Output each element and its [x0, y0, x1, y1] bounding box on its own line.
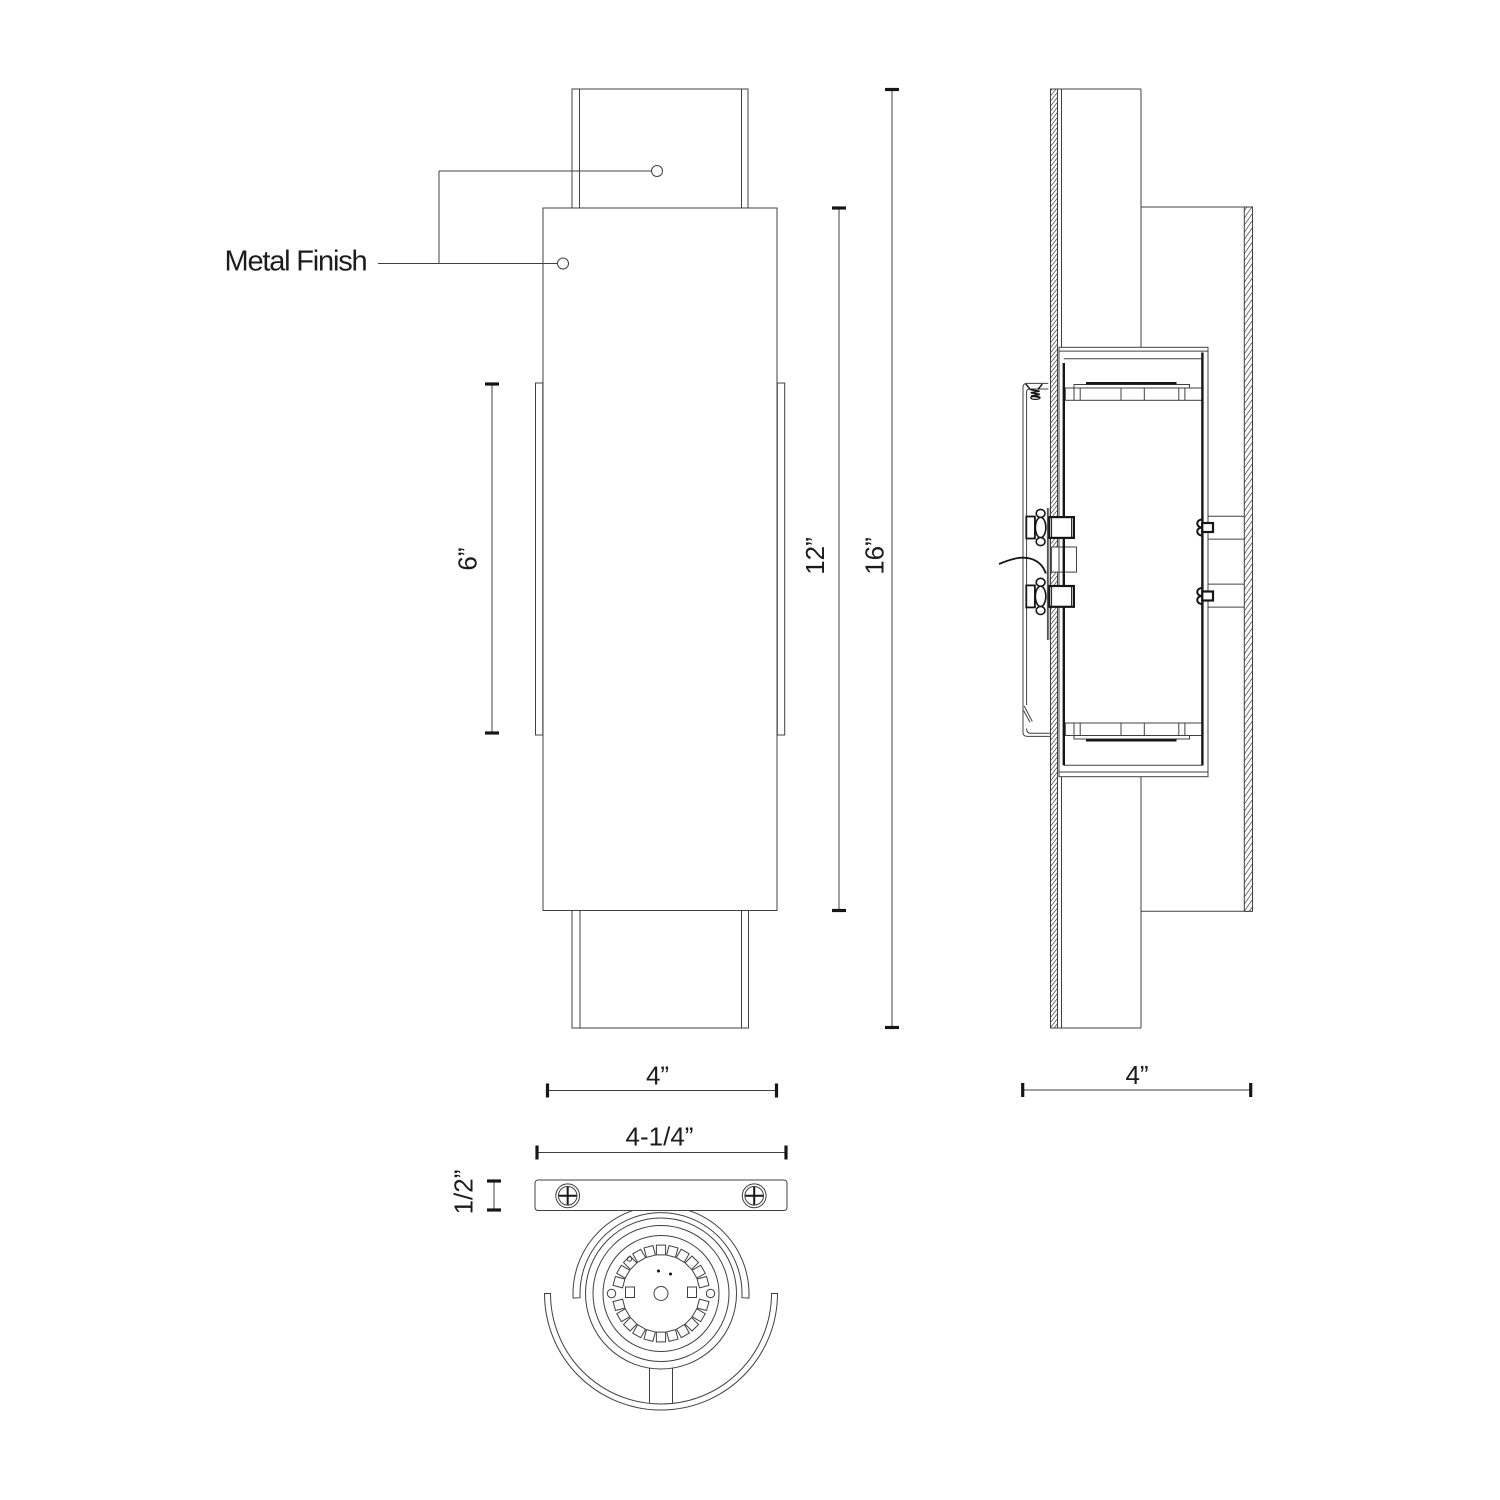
svg-text:12”: 12”: [800, 537, 830, 575]
svg-text:16”: 16”: [860, 537, 890, 575]
svg-text:Metal Finish: Metal Finish: [225, 246, 367, 278]
svg-text:4”: 4”: [1125, 1060, 1148, 1090]
svg-text:6”: 6”: [453, 547, 483, 570]
svg-text:4”: 4”: [646, 1061, 669, 1091]
svg-text:1/2”: 1/2”: [449, 1170, 479, 1215]
svg-text:4-1/4”: 4-1/4”: [626, 1122, 694, 1152]
